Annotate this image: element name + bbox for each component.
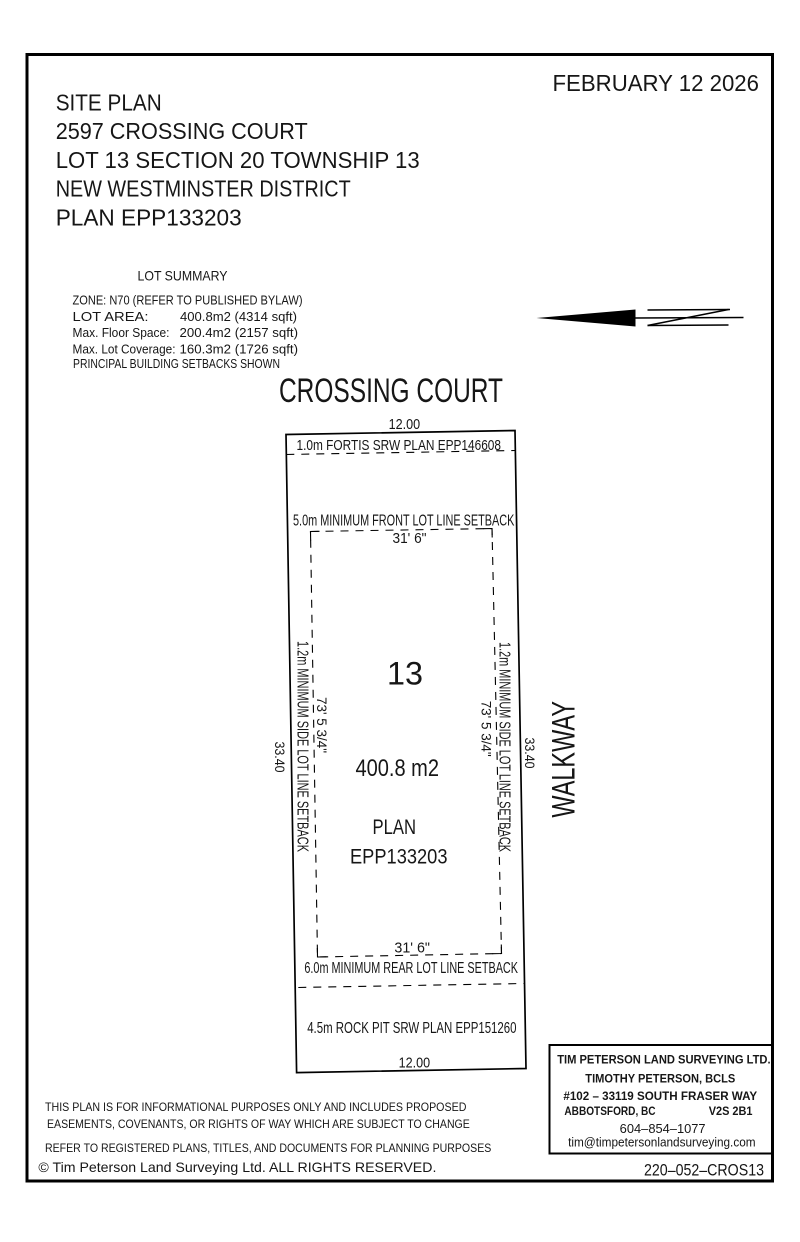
svg-text:200.4m2 (2157 sqft): 200.4m2 (2157 sqft) [180,326,299,340]
svg-text:4.5m ROCK PIT SRW PLAN EPP1512: 4.5m ROCK PIT SRW PLAN EPP151260 [307,1020,517,1037]
svg-text:FEBRUARY 12 2026: FEBRUARY 12 2026 [553,70,760,96]
svg-text:TIMOTHY PETERSON, BCLS: TIMOTHY PETERSON, BCLS [585,1072,735,1086]
svg-text:NEW WESTMINSTER DISTRICT: NEW WESTMINSTER DISTRICT [56,176,351,202]
svg-text:TIM PETERSON LAND SURVEYING LT: TIM PETERSON LAND SURVEYING LTD. [557,1053,770,1067]
svg-text:1.2m MINIMUM SIDE LOT LINE SET: 1.2m MINIMUM SIDE LOT LINE SETBACK [496,642,513,852]
svg-text:LOT AREA:: LOT AREA: [73,310,149,324]
svg-text:12.00: 12.00 [389,416,421,433]
svg-text:33.40: 33.40 [522,738,537,769]
svg-text:2597 CROSSING COURT: 2597 CROSSING COURT [56,118,308,144]
svg-text:6.0m MINIMUM REAR LOT LINE SET: 6.0m MINIMUM REAR LOT LINE SETBACK [304,960,518,977]
svg-text:33.40: 33.40 [272,742,287,773]
svg-text:LOT SUMMARY: LOT SUMMARY [138,268,229,284]
svg-text:12.00: 12.00 [399,1054,431,1071]
svg-text:REFER TO REGISTERED PLANS, TIT: REFER TO REGISTERED PLANS, TITLES, AND D… [45,1141,491,1155]
svg-text:1.2m MINIMUM SIDE LOT LINE SET: 1.2m MINIMUM SIDE LOT LINE SETBACK [294,641,311,852]
svg-text:Max. Lot Coverage:: Max. Lot Coverage: [73,343,176,357]
svg-text:160.3m2 (1726 sqft): 160.3m2 (1726 sqft) [180,343,299,357]
svg-text:220–052–CROS13: 220–052–CROS13 [644,1161,764,1180]
svg-text:400.8 m2: 400.8 m2 [356,755,440,782]
svg-text:EASEMENTS, COVENANTS, OR RIGHT: EASEMENTS, COVENANTS, OR RIGHTS OF WAY W… [47,1117,470,1131]
svg-text:31' 6": 31' 6" [394,940,430,957]
svg-text:13: 13 [387,656,423,692]
svg-text:© Tim Peterson Land Surveying: © Tim Peterson Land Surveying Ltd. ALL R… [38,1159,436,1175]
svg-text:WALKWAY: WALKWAY [546,701,582,818]
svg-text:PLAN: PLAN [373,815,417,839]
svg-text:tim@timpetersonlandsurveying.c: tim@timpetersonlandsurveying.com [568,1136,756,1150]
svg-text:73' 5 3/4": 73' 5 3/4" [479,701,495,757]
svg-text:ZONE: N70 (REFER TO PUBLISHED: ZONE: N70 (REFER TO PUBLISHED BYLAW) [73,294,303,308]
svg-text:73' 5 3/4": 73' 5 3/4" [314,697,330,753]
svg-text:V2S 2B1: V2S 2B1 [709,1104,753,1118]
svg-text:31' 6": 31' 6" [393,531,427,547]
svg-text:EPP133203: EPP133203 [350,844,448,868]
svg-text:5.0m MINIMUM FRONT LOT LINE SE: 5.0m MINIMUM FRONT LOT LINE SETBACK [293,513,515,530]
svg-text:CROSSING COURT: CROSSING COURT [279,372,503,410]
svg-text:400.8m2 (4314 sqft): 400.8m2 (4314 sqft) [180,310,297,324]
svg-text:PRINCIPAL BUILDING SETBACKS SH: PRINCIPAL BUILDING SETBACKS SHOWN [73,357,280,371]
svg-text:LOT 13 SECTION 20 TOWNSHIP 13: LOT 13 SECTION 20 TOWNSHIP 13 [56,147,420,173]
svg-text:PLAN EPP133203: PLAN EPP133203 [56,204,242,230]
svg-text:Max. Floor Space:: Max. Floor Space: [73,326,170,340]
svg-text:#102 – 33119 SOUTH FRASER WAY: #102 – 33119 SOUTH FRASER WAY [563,1089,757,1103]
svg-text:SITE PLAN: SITE PLAN [56,90,162,116]
svg-text:ABBOTSFORD, BC: ABBOTSFORD, BC [564,1104,655,1118]
svg-text:604–854–1077: 604–854–1077 [620,1122,706,1136]
svg-text:THIS PLAN IS FOR INFORMATIONAL: THIS PLAN IS FOR INFORMATIONAL PURPOSES … [45,1100,467,1114]
